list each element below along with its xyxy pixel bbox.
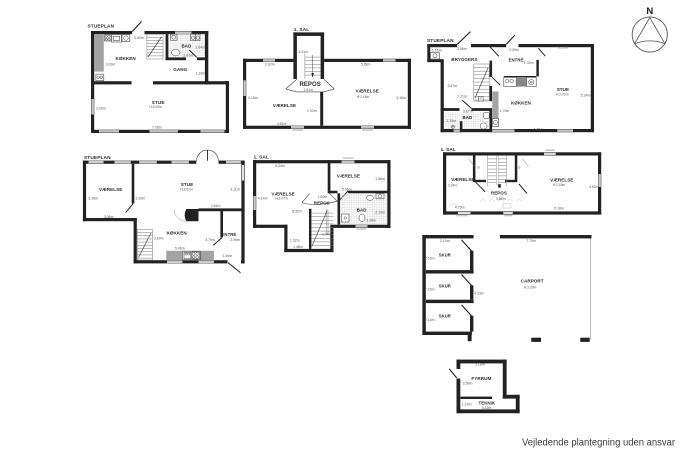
- svg-text:1.86m: 1.86m: [375, 177, 385, 181]
- svg-text:5.28m: 5.28m: [361, 63, 371, 67]
- svg-text:STUE: STUE: [181, 182, 193, 187]
- svg-text:1.13m: 1.13m: [462, 402, 472, 406]
- svg-text:3.26m: 3.26m: [96, 106, 106, 110]
- svg-text:3.87m: 3.87m: [463, 109, 473, 113]
- svg-text:2.99m: 2.99m: [230, 238, 240, 242]
- svg-text:H:2.01m: H:2.01m: [180, 188, 193, 192]
- svg-text:1.29m: 1.29m: [196, 72, 206, 76]
- svg-text:2.15m: 2.15m: [425, 288, 435, 292]
- svg-text:KØKKEN: KØKKEN: [511, 100, 531, 105]
- svg-text:VÆRELSE: VÆRELSE: [99, 187, 122, 192]
- svg-text:3.18m: 3.18m: [475, 363, 485, 367]
- svg-text:4.76m: 4.76m: [455, 206, 465, 210]
- svg-text:7.78m: 7.78m: [152, 125, 162, 129]
- svg-text:1.70m: 1.70m: [500, 109, 510, 113]
- svg-text:SKUR: SKUR: [439, 284, 451, 289]
- svg-text:5.06m: 5.06m: [342, 188, 352, 192]
- svg-text:KØKKEN: KØKKEN: [116, 56, 137, 61]
- svg-text:3.26m: 3.26m: [136, 196, 146, 200]
- svg-text:STUEPLAN: STUEPLAN: [88, 23, 115, 29]
- svg-text:3.41m: 3.41m: [298, 50, 308, 54]
- svg-text:VÆRELSE: VÆRELSE: [337, 174, 360, 179]
- svg-text:5.18m: 5.18m: [554, 206, 564, 210]
- svg-text:4.33m: 4.33m: [474, 292, 484, 296]
- svg-text:3.96m: 3.96m: [457, 47, 467, 51]
- svg-text:H:2.07m: H:2.07m: [275, 197, 288, 201]
- svg-text:3.11m: 3.11m: [230, 188, 240, 192]
- svg-text:ENTRÉ: ENTRÉ: [509, 58, 524, 63]
- svg-text:ENTRÉ: ENTRÉ: [222, 232, 237, 237]
- svg-text:1.16m: 1.16m: [432, 49, 442, 53]
- svg-text:2.14m: 2.14m: [440, 239, 450, 243]
- svg-text:KØKKEN: KØKKEN: [167, 231, 188, 236]
- svg-text:5.32m: 5.32m: [292, 209, 302, 213]
- svg-text:REPOS: REPOS: [314, 201, 330, 206]
- svg-text:4.14m: 4.14m: [258, 197, 268, 201]
- svg-text:2.16m: 2.16m: [425, 256, 435, 260]
- svg-text:2.09m: 2.09m: [509, 48, 519, 52]
- svg-text:Vejledende plantegning uden an: Vejledende plantegning uden ansvar: [522, 438, 676, 449]
- svg-text:5.24m: 5.24m: [581, 94, 591, 98]
- svg-text:N: N: [646, 6, 653, 17]
- svg-text:3.69m: 3.69m: [154, 236, 164, 240]
- svg-text:4.18m: 4.18m: [396, 96, 406, 100]
- svg-text:3.89m: 3.89m: [496, 197, 506, 201]
- svg-text:VÆRELSE: VÆRELSE: [451, 177, 474, 182]
- svg-text:H:2.00m: H:2.00m: [149, 105, 162, 109]
- svg-text:1. SAL: 1. SAL: [294, 27, 310, 33]
- svg-text:1. SAL: 1. SAL: [441, 147, 457, 153]
- svg-text:GANG: GANG: [173, 67, 187, 72]
- svg-text:SKUR: SKUR: [439, 314, 451, 319]
- svg-text:1.46m: 1.46m: [223, 254, 233, 258]
- svg-text:5.24m: 5.24m: [275, 164, 285, 168]
- svg-text:VÆRELSE: VÆRELSE: [271, 191, 294, 196]
- svg-text:1.60m: 1.60m: [318, 195, 328, 199]
- svg-text:3.87m: 3.87m: [448, 84, 458, 88]
- svg-text:VÆRELSE: VÆRELSE: [356, 88, 379, 93]
- svg-text:1.32m: 1.32m: [524, 61, 534, 65]
- svg-text:REPOS: REPOS: [491, 191, 507, 196]
- svg-text:2.21m: 2.21m: [457, 94, 467, 98]
- svg-text:1.32m: 1.32m: [290, 238, 300, 242]
- svg-text:H:2.23m: H:2.23m: [556, 92, 569, 96]
- svg-text:S: S: [480, 97, 482, 101]
- svg-text:7.70m: 7.70m: [526, 239, 536, 243]
- svg-text:VÆRELSE: VÆRELSE: [273, 103, 296, 108]
- svg-text:SKUR: SKUR: [439, 253, 451, 258]
- svg-text:3.24m: 3.24m: [322, 232, 332, 236]
- svg-text:H:2.18m: H:2.18m: [357, 95, 370, 99]
- svg-text:2.14m: 2.14m: [425, 318, 435, 322]
- svg-text:3.28m: 3.28m: [366, 218, 376, 222]
- svg-text:1.48m: 1.48m: [293, 245, 303, 249]
- svg-text:3.79m: 3.79m: [205, 238, 215, 242]
- svg-text:1.64m: 1.64m: [195, 46, 205, 50]
- svg-text:REPOS: REPOS: [300, 82, 321, 88]
- svg-text:3.24m: 3.24m: [448, 183, 458, 187]
- svg-text:5.46m: 5.46m: [175, 246, 185, 250]
- svg-text:VÆRELSE: VÆRELSE: [550, 178, 573, 183]
- svg-text:H:2.29m: H:2.29m: [524, 285, 537, 289]
- svg-text:1.34m: 1.34m: [446, 119, 456, 123]
- svg-text:CARPORT: CARPORT: [521, 278, 544, 283]
- svg-text:3.06m: 3.06m: [104, 215, 114, 219]
- svg-text:TEKNIK: TEKNIK: [479, 401, 496, 406]
- svg-text:FYRRUM: FYRRUM: [471, 376, 491, 381]
- svg-text:BAD: BAD: [357, 208, 367, 213]
- svg-text:BAD: BAD: [463, 115, 473, 120]
- svg-text:4.18m: 4.18m: [248, 96, 258, 100]
- svg-text:1.92m: 1.92m: [307, 109, 317, 113]
- svg-text:4.51m: 4.51m: [277, 122, 287, 126]
- svg-text:4.12m: 4.12m: [482, 406, 492, 410]
- svg-text:1. SAL: 1. SAL: [254, 155, 270, 161]
- svg-text:BRYGGERS: BRYGGERS: [451, 57, 477, 62]
- svg-text:STUEPLAN: STUEPLAN: [84, 155, 111, 161]
- svg-text:3.02m: 3.02m: [106, 62, 116, 66]
- svg-text:2.59m: 2.59m: [463, 382, 473, 386]
- svg-text:3.26m: 3.26m: [88, 196, 98, 200]
- svg-text:2.19m: 2.19m: [375, 211, 385, 215]
- svg-text:2.51m: 2.51m: [211, 204, 221, 208]
- svg-text:2.61m: 2.61m: [183, 54, 193, 58]
- svg-text:4.42m: 4.42m: [533, 127, 543, 131]
- svg-text:H:2.18m: H:2.18m: [553, 183, 566, 187]
- svg-text:4.60m: 4.60m: [134, 36, 144, 40]
- svg-text:5.23m: 5.23m: [558, 46, 568, 50]
- svg-text:BAD: BAD: [182, 43, 193, 48]
- svg-text:3.60m: 3.60m: [589, 185, 599, 189]
- svg-text:2.92m: 2.92m: [265, 63, 275, 67]
- svg-text:STUEPLAN: STUEPLAN: [427, 38, 454, 44]
- svg-text:1.61m: 1.61m: [303, 88, 313, 92]
